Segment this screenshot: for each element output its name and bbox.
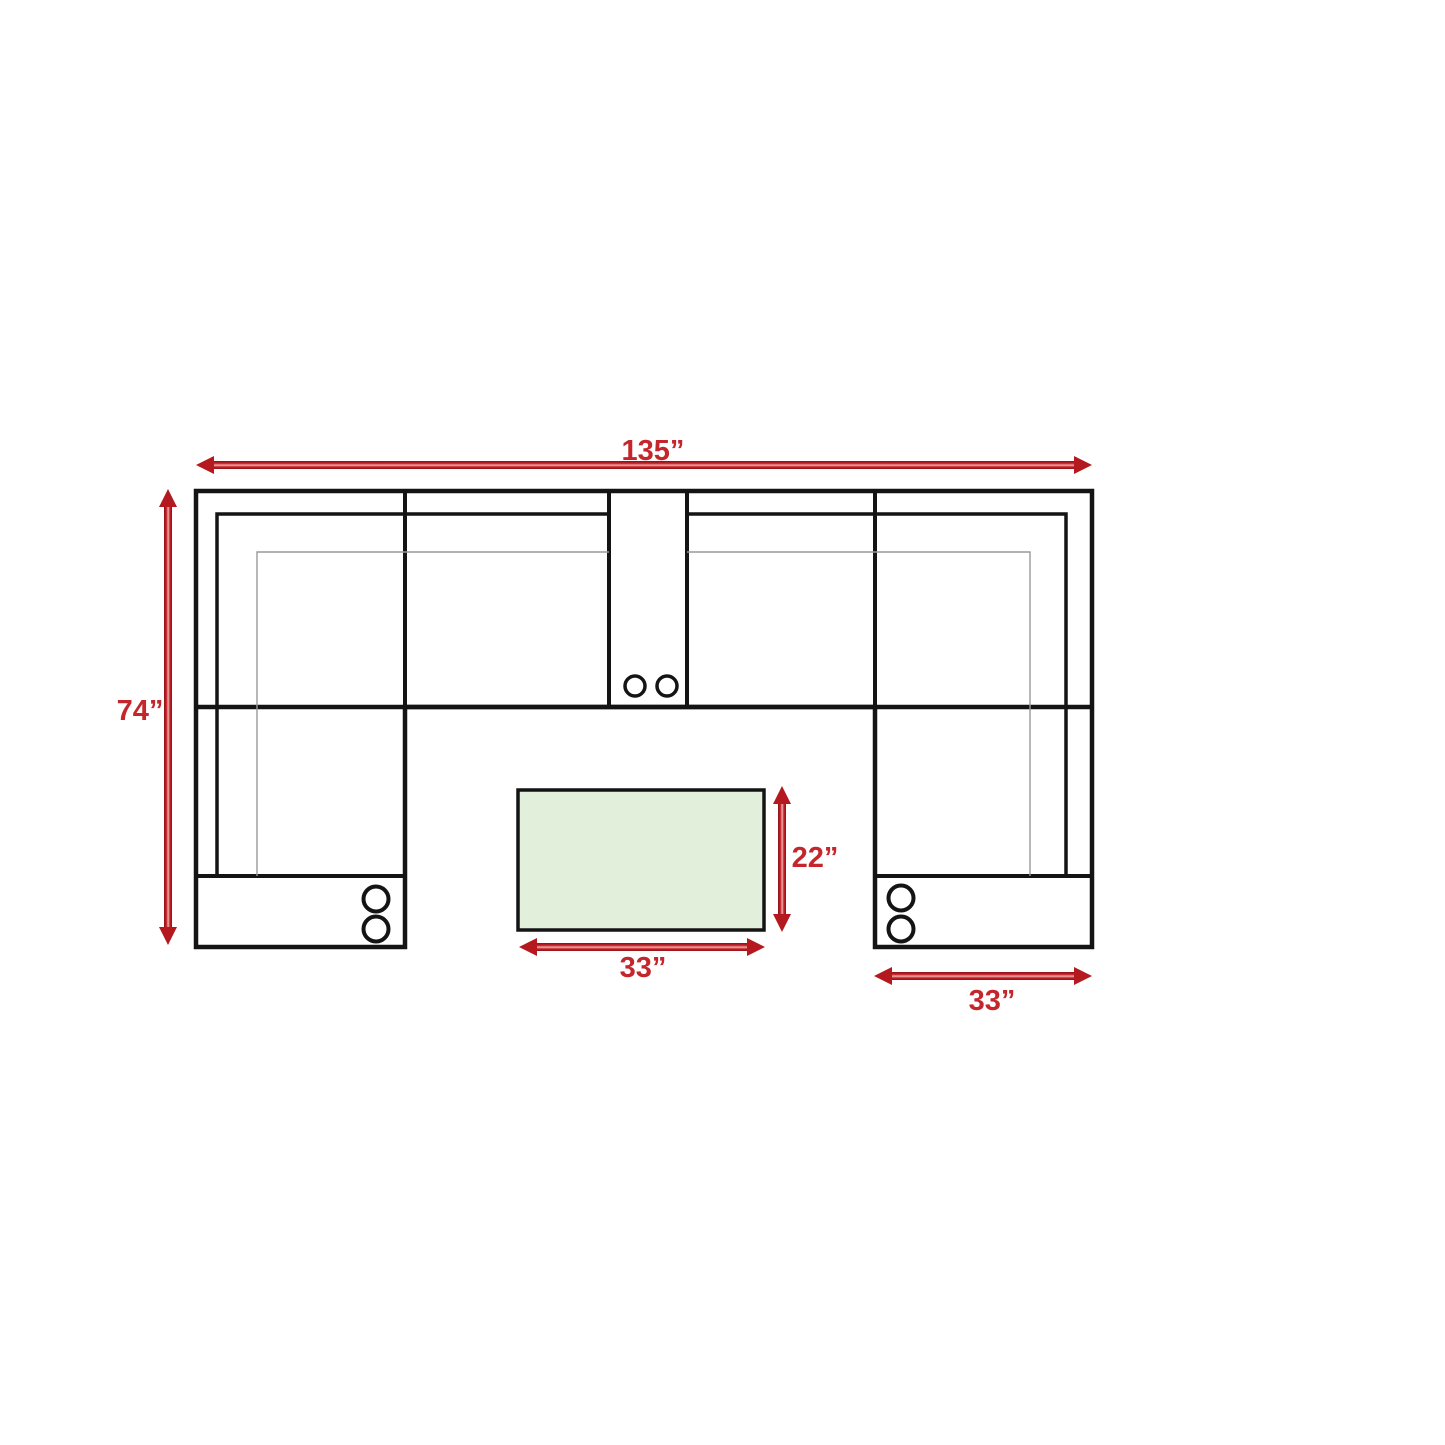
console-cupholder-icon bbox=[625, 676, 645, 696]
floorplan-canvas: 135” 74” 22” 33” 33” bbox=[0, 0, 1445, 1445]
chaise-width-label: 33” bbox=[952, 986, 1032, 1016]
arrow-head-down-icon bbox=[159, 927, 177, 945]
coffee-table bbox=[518, 790, 764, 930]
console-cupholder-icon bbox=[657, 676, 677, 696]
overall-width-label: 135” bbox=[593, 436, 713, 466]
arrow-head-up-icon bbox=[159, 489, 177, 507]
chaise-width-arrow bbox=[874, 967, 1092, 985]
arrow-head-left-icon bbox=[196, 456, 214, 474]
arrow-shaft bbox=[892, 972, 1074, 980]
arrow-head-right-icon bbox=[1074, 456, 1092, 474]
arrow-head-up-icon bbox=[773, 786, 791, 804]
arrow-head-right-icon bbox=[1074, 967, 1092, 985]
arrow-head-left-icon bbox=[874, 967, 892, 985]
arrow-head-left-icon bbox=[519, 938, 537, 956]
sectional-floorplan-drawing bbox=[0, 0, 1445, 1445]
table-width-label: 33” bbox=[603, 953, 683, 983]
table-depth-label: 22” bbox=[785, 843, 845, 873]
left-chaise-cupholder-icon bbox=[364, 887, 389, 912]
right-chaise-cupholder-icon bbox=[889, 886, 914, 911]
arrow-shaft bbox=[537, 943, 747, 951]
overall-depth-label: 74” bbox=[100, 696, 180, 726]
right-chaise-cupholder-icon bbox=[889, 917, 914, 942]
arrow-head-right-icon bbox=[747, 938, 765, 956]
left-chaise-cupholder-icon bbox=[364, 917, 389, 942]
arrow-head-down-icon bbox=[773, 914, 791, 932]
